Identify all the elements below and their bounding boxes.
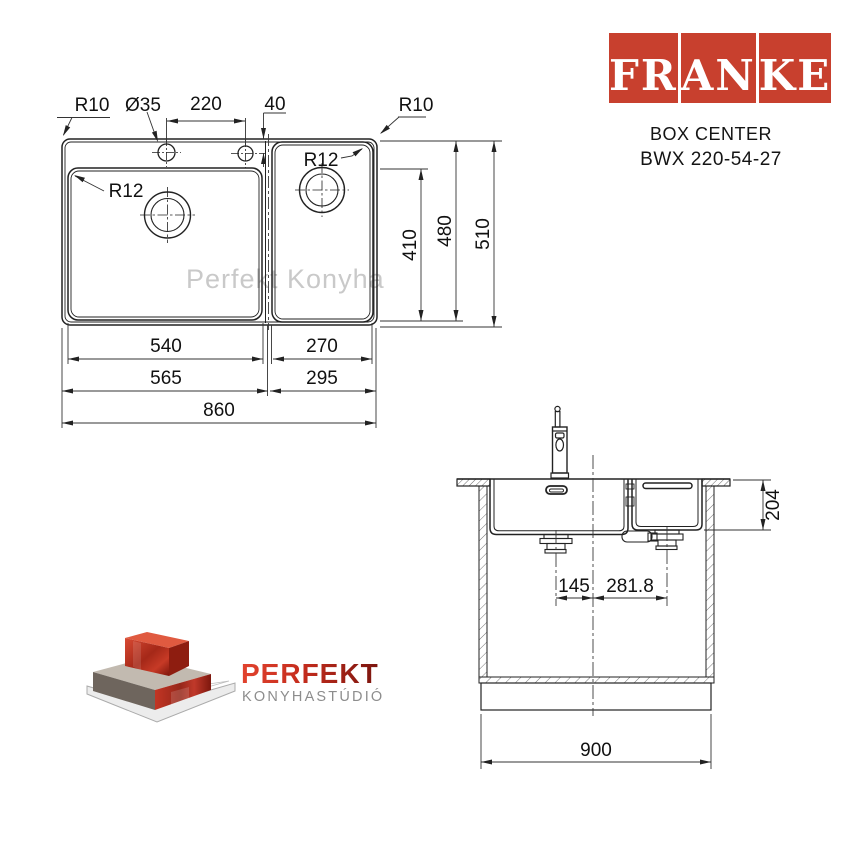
label-r12-second: R12	[304, 150, 339, 171]
bowl-rail	[643, 483, 692, 489]
dim-270: 270	[306, 336, 338, 357]
perfekt-logo: PERFEKT KONYHASTÚDIÓ	[85, 622, 415, 732]
dim-410: 410	[400, 229, 421, 261]
dim-565: 565	[150, 368, 182, 389]
dim-900: 900	[580, 740, 612, 761]
countertop-left	[457, 479, 490, 486]
dim-540: 540	[150, 336, 182, 357]
dim-204: 204	[763, 489, 784, 521]
section-dimensions	[481, 480, 771, 769]
franke-logo-block-1: FR	[609, 33, 678, 103]
franke-logo-block-2: AN	[681, 33, 756, 103]
top-view-dimensions	[57, 112, 502, 428]
dim-510: 510	[473, 218, 494, 250]
perfekt-logo-name: PERFEKT	[241, 658, 379, 690]
model-number: BWX 220-54-27	[600, 149, 822, 171]
dim-480: 480	[435, 215, 456, 247]
perfekt-logo-graphic	[85, 628, 240, 728]
dim-281-8: 281.8	[606, 576, 654, 597]
label-hole-spacing: 220	[190, 94, 222, 115]
faucet-hole-second	[231, 139, 266, 168]
model-text: BOX CENTER BWX 220-54-27	[600, 124, 822, 171]
label-r10-left: R10	[75, 95, 110, 116]
perfekt-logo-subtitle: KONYHASTÚDIÓ	[242, 689, 384, 705]
spec-sheet: { "brand": { "logo_blocks": ["FR", "AN",…	[0, 0, 850, 850]
section-main-bowl	[490, 479, 628, 535]
dim-145: 145	[558, 576, 590, 597]
dim-295: 295	[306, 368, 338, 389]
countertop-right	[702, 479, 730, 486]
plinth	[481, 683, 711, 710]
top-view-arrows	[61, 119, 497, 426]
section-drain-second	[622, 530, 683, 550]
model-series: BOX CENTER	[600, 124, 822, 145]
faucet	[551, 406, 569, 478]
label-hole-diameter: Ø35	[125, 95, 161, 116]
dim-860: 860	[203, 400, 235, 421]
top-view-labels: R10 Ø35 220 40 R10 R12 R12 540 270 565 2…	[75, 94, 494, 421]
section-second-bowl	[632, 479, 702, 530]
label-hole-offset: 40	[264, 94, 285, 115]
franke-logo-block-3: KE	[759, 33, 832, 103]
label-r10-right: R10	[399, 95, 434, 116]
section-view	[457, 406, 730, 716]
drain-main	[140, 187, 195, 243]
label-r12-main: R12	[109, 181, 144, 202]
franke-logo: FR AN KE	[609, 33, 813, 103]
drain-second	[295, 163, 349, 217]
main-bowl	[68, 168, 262, 320]
section-arrows	[481, 480, 766, 765]
